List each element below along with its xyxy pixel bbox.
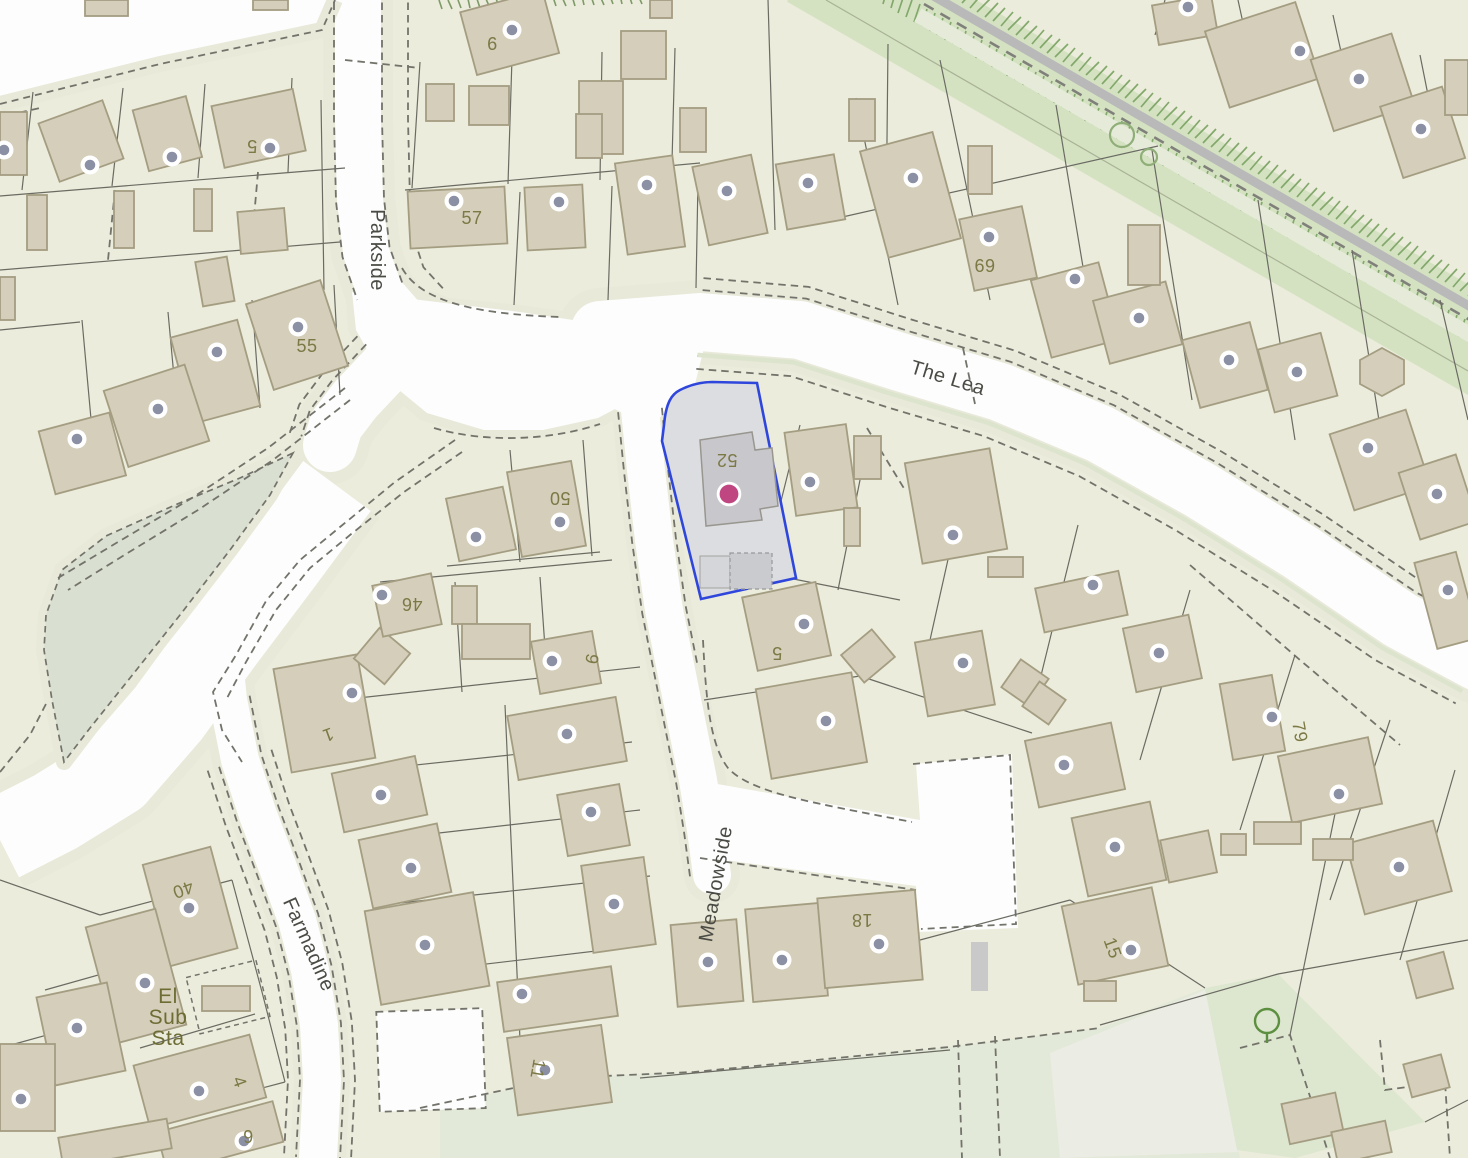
svg-text:52: 52 — [716, 450, 737, 470]
svg-text:69: 69 — [974, 256, 995, 276]
svg-text:6: 6 — [243, 1126, 254, 1146]
svg-text:Sta: Sta — [151, 1027, 184, 1050]
svg-text:79: 79 — [1288, 720, 1311, 744]
svg-text:9: 9 — [487, 33, 498, 53]
svg-text:50: 50 — [549, 488, 570, 508]
svg-text:Parkside: Parkside — [366, 209, 388, 291]
svg-text:18: 18 — [851, 910, 872, 930]
svg-text:55: 55 — [296, 336, 317, 356]
svg-text:57: 57 — [461, 208, 482, 228]
svg-text:Sub: Sub — [149, 1006, 188, 1029]
svg-text:5: 5 — [772, 643, 783, 663]
svg-text:46: 46 — [401, 594, 422, 614]
svg-text:11: 11 — [526, 1058, 549, 1081]
svg-text:5: 5 — [247, 136, 258, 156]
svg-text:El: El — [158, 985, 178, 1008]
